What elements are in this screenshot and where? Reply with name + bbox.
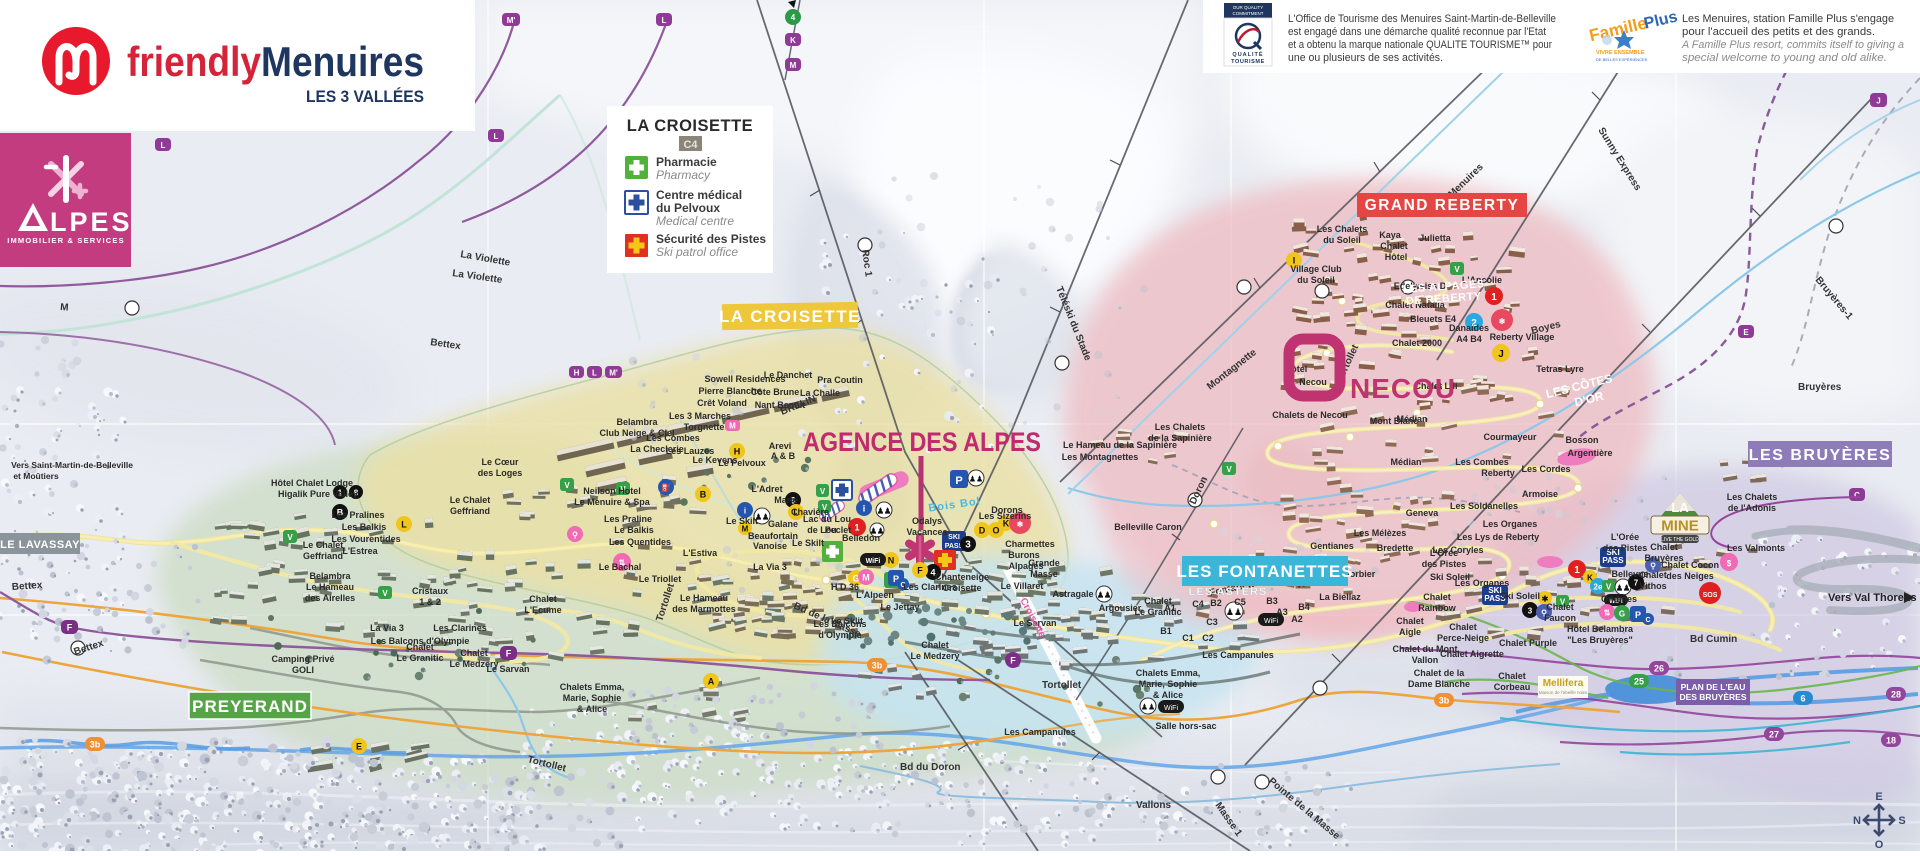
svg-text:Chalet 2000: Chalet 2000 <box>1392 338 1442 348</box>
svg-text:Le Jettay: Le Jettay <box>880 602 919 612</box>
svg-text:Julietta: Julietta <box>1419 233 1452 243</box>
svg-text:de l'Adonis: de l'Adonis <box>1728 503 1776 513</box>
svg-text:Chalet Aigrette: Chalet Aigrette <box>1440 649 1504 659</box>
svg-text:IMMOBILIER & SERVICES: IMMOBILIER & SERVICES <box>7 236 125 245</box>
svg-text:LIVE THE GOLD: LIVE THE GOLD <box>1661 537 1699 543</box>
svg-text:de la Sapinière: de la Sapinière <box>1148 433 1212 443</box>
svg-text:L: L <box>161 141 166 150</box>
svg-text:B: B <box>700 490 707 500</box>
svg-text:Torgnette: Torgnette <box>684 422 725 432</box>
svg-text:B3: B3 <box>1266 596 1278 606</box>
svg-text:Médian: Médian <box>1396 414 1427 424</box>
svg-text:L'Alpeen: L'Alpeen <box>856 590 894 600</box>
svg-text:O: O <box>992 526 999 536</box>
svg-text:V: V <box>287 533 293 542</box>
svg-text:L'Estrea: L'Estrea <box>342 546 378 556</box>
svg-text:& Alice: & Alice <box>1153 690 1183 700</box>
svg-text:Mellifera: Mellifera <box>1543 678 1584 689</box>
svg-text:Marie: Marie <box>774 495 798 505</box>
svg-text:Kaya: Kaya <box>1379 230 1402 240</box>
svg-text:Armoise: Armoise <box>1522 489 1558 499</box>
svg-text:D: D <box>979 526 986 536</box>
svg-text:& Alice: & Alice <box>577 704 607 714</box>
svg-text:MINE: MINE <box>1661 518 1699 535</box>
svg-text:Les Clarines: Les Clarines <box>903 582 957 592</box>
svg-text:C1: C1 <box>1182 633 1194 643</box>
svg-text:❄: ❄ <box>1017 520 1024 529</box>
svg-text:du Soleil: du Soleil <box>1297 275 1335 285</box>
svg-text:3: 3 <box>1528 607 1533 616</box>
svg-text:Village Club: Village Club <box>1290 264 1342 274</box>
svg-text:$: $ <box>1727 559 1732 568</box>
svg-text:Le Hameau: Le Hameau <box>680 593 728 603</box>
svg-text:18: 18 <box>1886 736 1896 746</box>
svg-text:❄: ❄ <box>1499 317 1506 326</box>
svg-text:Les Lauzes: Les Lauzes <box>666 446 715 456</box>
svg-text:Higalik Pure Valley: Higalik Pure Valley <box>278 489 358 499</box>
svg-text:Vers Val Thorens: Vers Val Thorens <box>1828 592 1917 604</box>
svg-text:25: 25 <box>1634 677 1644 687</box>
svg-text:♟♟: ♟♟ <box>1141 703 1155 712</box>
svg-text:♟♟: ♟♟ <box>1226 607 1242 617</box>
svg-text:Centre médical: Centre médical <box>656 188 742 202</box>
svg-text:Le Villaret: Le Villaret <box>1001 581 1044 591</box>
svg-text:26: 26 <box>1654 664 1664 674</box>
svg-text:M: M <box>862 573 870 583</box>
svg-text:⚲: ⚲ <box>572 531 578 540</box>
svg-text:3b: 3b <box>872 661 883 671</box>
svg-text:LE LAVASSAY: LE LAVASSAY <box>0 539 80 551</box>
svg-text:des Airelles: des Airelles <box>305 593 355 603</box>
svg-text:M': M' <box>507 16 516 25</box>
svg-text:Arevi: Arevi <box>769 441 792 451</box>
svg-text:NECOU: NECOU <box>1350 373 1456 404</box>
svg-text:PREYERAND: PREYERAND <box>192 697 308 716</box>
svg-text:Chalet: Chalet <box>1380 241 1408 251</box>
svg-text:O: O <box>1875 839 1884 851</box>
svg-text:Geffriand: Geffriand <box>450 506 490 516</box>
svg-text:Chalet de la: Chalet de la <box>1414 668 1466 678</box>
svg-text:L'Orée: L'Orée <box>1611 532 1639 542</box>
svg-text:WiFi: WiFi <box>1164 705 1178 712</box>
svg-text:♟♟: ♟♟ <box>1097 591 1111 600</box>
svg-text:VIVRE ENSEMBLE: VIVRE ENSEMBLE <box>1596 50 1645 56</box>
svg-text:Belambra: Belambra <box>309 571 351 581</box>
svg-text:S: S <box>1898 815 1905 827</box>
svg-text:LA: LA <box>1671 500 1689 515</box>
svg-text:Vallons: Vallons <box>1136 800 1171 811</box>
svg-text:Odalys: Odalys <box>912 516 942 526</box>
svg-text:Marie, Sophie: Marie, Sophie <box>563 693 622 703</box>
svg-text:L'Ecume: L'Ecume <box>524 605 561 615</box>
svg-text:Pharmacy: Pharmacy <box>656 168 711 182</box>
svg-text:et a obtenu la marque national: et a obtenu la marque nationale QUALITE … <box>1288 39 1552 51</box>
svg-text:Grande: Grande <box>1028 558 1060 568</box>
svg-text:L: L <box>494 132 499 141</box>
svg-text:Le Pelvoux: Le Pelvoux <box>718 458 766 468</box>
svg-text:H: H <box>574 369 580 378</box>
svg-text:AGENCE DES ALPES: AGENCE DES ALPES <box>803 427 1041 457</box>
svg-text:Dame Blanche: Dame Blanche <box>1408 679 1470 689</box>
svg-text:Le Balkis: Le Balkis <box>614 525 654 535</box>
svg-text:Pra Coutin: Pra Coutin <box>817 375 863 385</box>
svg-text:friendlyMenuires: friendlyMenuires <box>127 38 424 85</box>
svg-text:OUR QUALITY: OUR QUALITY <box>1233 5 1264 10</box>
svg-text:Côte Brune: Côte Brune <box>751 387 800 397</box>
svg-text:3b: 3b <box>1439 696 1450 706</box>
svg-text:Beaufortain: Beaufortain <box>748 531 798 541</box>
svg-text:La Biellaz: La Biellaz <box>1319 592 1361 602</box>
svg-text:WiFi: WiFi <box>866 558 881 565</box>
svg-text:COMMITMENT: COMMITMENT <box>1233 11 1264 16</box>
svg-text:DE BELLES EXPÉRIENCES: DE BELLES EXPÉRIENCES <box>1596 57 1648 62</box>
svg-text:Necou: Necou <box>1299 377 1327 387</box>
svg-text:Chalet Cocon: Chalet Cocon <box>1661 560 1719 570</box>
svg-text:LA CROISETTE: LA CROISETTE <box>719 307 861 326</box>
svg-text:Les Balkis: Les Balkis <box>342 522 387 532</box>
svg-text:1: 1 <box>854 523 859 533</box>
svg-text:Les Mélèzes: Les Mélèzes <box>1354 528 1407 538</box>
svg-text:Vallon: Vallon <box>1412 655 1439 665</box>
svg-text:⛽: ⛽ <box>661 483 671 493</box>
svg-text:LES FONTANETTES: LES FONTANETTES <box>1176 562 1353 581</box>
svg-text:Hôtel Belambra: Hôtel Belambra <box>1567 624 1634 634</box>
svg-text:Ski Soleil: Ski Soleil <box>1430 572 1470 582</box>
svg-text:GRAND REBERTY: GRAND REBERTY <box>1365 197 1520 214</box>
svg-text:1: 1 <box>1491 292 1497 303</box>
svg-text:C: C <box>1854 491 1860 500</box>
svg-text:B1: B1 <box>1160 626 1172 636</box>
svg-text:Astragale: Astragale <box>1052 589 1093 599</box>
svg-text:Cristaux: Cristaux <box>412 586 448 596</box>
svg-text:Chalets Emma,: Chalets Emma, <box>1136 668 1201 678</box>
svg-text:Les Menuires, station Famille: Les Menuires, station Famille Plus s'eng… <box>1682 13 1894 25</box>
svg-text:LA CROISETTE: LA CROISETTE <box>627 117 753 135</box>
svg-text:Le Cœur: Le Cœur <box>482 457 519 467</box>
svg-text:F: F <box>67 623 73 633</box>
svg-text:LES ASTERS: LES ASTERS <box>1189 586 1268 598</box>
svg-text:B4: B4 <box>1298 602 1310 612</box>
svg-text:Chalet: Chalet <box>460 648 488 658</box>
svg-text:Les 3 Marches: Les 3 Marches <box>669 411 731 421</box>
svg-text:V: V <box>1454 265 1460 274</box>
svg-text:Les Praline: Les Praline <box>604 514 652 524</box>
svg-text:Le Chalet: Le Chalet <box>303 540 344 550</box>
svg-text:27: 27 <box>1769 730 1779 740</box>
svg-text:Danaïdes: Danaïdes <box>1449 323 1489 333</box>
svg-text:6: 6 <box>1800 694 1805 704</box>
svg-text:Corbeau: Corbeau <box>1494 682 1531 692</box>
svg-text:Le Skilt: Le Skilt <box>792 538 824 548</box>
svg-text:La Via 3: La Via 3 <box>753 562 787 572</box>
svg-text:Masse: Masse <box>1030 569 1058 579</box>
svg-text:Le Granitic: Le Granitic <box>396 653 443 663</box>
svg-text:Charmettes: Charmettes <box>1005 539 1055 549</box>
svg-text:Pharmacie: Pharmacie <box>656 155 717 169</box>
svg-text:LES 3 VALLÉES: LES 3 VALLÉES <box>306 87 424 106</box>
svg-text:DES BRUYÈRES: DES BRUYÈRES <box>1679 692 1746 702</box>
svg-text:Le Hameau: Le Hameau <box>306 582 354 592</box>
svg-text:Courmayeur: Courmayeur <box>1483 432 1537 442</box>
svg-text:PLAN DE L'EAU: PLAN DE L'EAU <box>1681 682 1746 692</box>
svg-text:28: 28 <box>1891 690 1901 700</box>
svg-text:est engagé dans une démarche q: est engagé dans une démarche qualité rec… <box>1288 26 1546 38</box>
svg-text:2e: 2e <box>1594 583 1603 592</box>
svg-text:Les Clarines: Les Clarines <box>433 623 487 633</box>
svg-text:Argousier: Argousier <box>1099 603 1142 613</box>
svg-text:N: N <box>888 556 895 566</box>
svg-text:Rainbow: Rainbow <box>1418 603 1456 613</box>
svg-text:Les Chalets: Les Chalets <box>1155 422 1206 432</box>
svg-text:Les Campanules: Les Campanules <box>1202 650 1274 660</box>
svg-text:Chalet: Chalet <box>1449 622 1477 632</box>
svg-text:L: L <box>662 16 667 25</box>
svg-text:C2: C2 <box>1202 633 1214 643</box>
svg-text:Les Lys de Reberty: Les Lys de Reberty <box>1457 532 1539 542</box>
svg-text:Chalet Purple: Chalet Purple <box>1499 638 1557 648</box>
svg-text:Tetras Lyre: Tetras Lyre <box>1536 364 1584 374</box>
svg-text:Vanoise: Vanoise <box>753 541 787 551</box>
svg-text:Hôtel: Hôtel <box>1385 252 1408 262</box>
svg-text:7: 7 <box>1634 579 1639 588</box>
svg-text:Galane: Galane <box>768 519 798 529</box>
svg-text:Les Montagnettes: Les Montagnettes <box>1062 452 1139 462</box>
svg-text:Chalet: Chalet <box>1546 602 1574 612</box>
svg-text:Marie, Sophie: Marie, Sophie <box>1139 679 1198 689</box>
svg-text:E: E <box>356 742 362 752</box>
svg-text:SKI: SKI <box>948 534 960 541</box>
svg-text:L'Estiva: L'Estiva <box>683 548 718 558</box>
svg-text:M: M <box>790 61 797 70</box>
svg-text:Maison de l'abeille noire: Maison de l'abeille noire <box>1539 690 1588 695</box>
svg-text:Les Chalets: Les Chalets <box>1317 224 1368 234</box>
svg-text:B2: B2 <box>1210 598 1222 608</box>
svg-text:⇅: ⇅ <box>1604 609 1611 618</box>
svg-text:Les Chalets: Les Chalets <box>1727 492 1778 502</box>
svg-text:3: 3 <box>965 540 971 551</box>
svg-text:C: C <box>1645 617 1650 624</box>
svg-text:des Marmottes: des Marmottes <box>672 604 736 614</box>
svg-text:"Les Bruyères": "Les Bruyères" <box>1567 635 1633 645</box>
svg-text:P: P <box>955 475 962 487</box>
svg-text:Les Combes: Les Combes <box>1455 457 1509 467</box>
svg-text:L: L <box>401 520 407 530</box>
svg-text:1 & 2: 1 & 2 <box>419 597 441 607</box>
svg-text:C5: C5 <box>1234 597 1246 607</box>
svg-text:TOURISME: TOURISME <box>1231 59 1265 65</box>
svg-text:PASS: PASS <box>1602 556 1624 565</box>
svg-text:M: M <box>60 302 69 314</box>
svg-text:Belambra: Belambra <box>616 417 658 427</box>
svg-text:M: M <box>729 422 736 431</box>
svg-text:des Pistes: des Pistes <box>1603 543 1648 553</box>
svg-text:V: V <box>1226 465 1232 474</box>
svg-text:SOS: SOS <box>1703 592 1718 599</box>
svg-text:Bosson: Bosson <box>1565 435 1598 445</box>
svg-text:Les Campanules: Les Campanules <box>1004 727 1076 737</box>
svg-text:Vers Saint-Martin-de-Bellevill: Vers Saint-Martin-de-Belleville <box>11 460 133 470</box>
svg-text:Ski patrol office: Ski patrol office <box>656 245 738 259</box>
svg-text:C3: C3 <box>1206 617 1218 627</box>
svg-text:Hôtel Chalet Lodge: Hôtel Chalet Lodge <box>271 478 353 488</box>
svg-text:C4: C4 <box>683 139 698 151</box>
svg-text:F: F <box>917 566 923 576</box>
svg-text:E: E <box>1743 328 1749 337</box>
svg-text:A Famille Plus resort, commits: A Famille Plus resort, commits itself to… <box>1681 39 1904 51</box>
svg-text:Ondines: Ondines <box>1601 594 1637 604</box>
svg-text:Neilson Hotel: Neilson Hotel <box>583 486 641 496</box>
svg-text:L'Adret: L'Adret <box>751 484 782 494</box>
svg-text:Les Sizerins: Les Sizerins <box>979 511 1032 521</box>
svg-text:special welcome to young and o: special welcome to young and old alike. <box>1682 52 1887 64</box>
svg-text:A1: A1 <box>1164 603 1176 613</box>
svg-text:une ou plusieurs de ses activi: une ou plusieurs de ses activités. <box>1288 52 1443 64</box>
svg-text:H D 36: H D 36 <box>831 582 859 592</box>
svg-text:♟♟: ♟♟ <box>877 507 891 516</box>
svg-text:Chalet: Chalet <box>1650 542 1678 552</box>
svg-text:E: E <box>1875 791 1882 803</box>
svg-text:Bd du Doron: Bd du Doron <box>900 762 961 773</box>
svg-text:Aigle: Aigle <box>1399 627 1421 637</box>
svg-text:Bd Cumin: Bd Cumin <box>1690 634 1737 645</box>
svg-text:Faucon: Faucon <box>1544 613 1576 623</box>
svg-text:Crêt Voland: Crêt Voland <box>697 398 747 408</box>
svg-text:LPES: LPES <box>50 207 133 237</box>
svg-text:Les Balcons d'Olympie: Les Balcons d'Olympie <box>371 636 470 646</box>
svg-text:Chalets Emma,: Chalets Emma, <box>560 682 625 692</box>
svg-text:3b: 3b <box>90 740 101 750</box>
svg-text:A3: A3 <box>1276 607 1288 617</box>
svg-text:i: i <box>744 507 746 516</box>
svg-text:LES BRUYÈRES: LES BRUYÈRES <box>1749 445 1891 464</box>
svg-text:♟♟: ♟♟ <box>1616 584 1630 593</box>
svg-text:Les Quentides: Les Quentides <box>609 537 671 547</box>
svg-text:des Loges: des Loges <box>478 468 523 478</box>
svg-text:pour l'accueil des petits et d: pour l'accueil des petits et des grands. <box>1682 26 1875 38</box>
svg-text:Le Chalet: Le Chalet <box>450 495 491 505</box>
svg-text:L: L <box>592 369 597 378</box>
svg-text:Sécurité des Pistes: Sécurité des Pistes <box>656 232 766 246</box>
svg-text:Gentianes: Gentianes <box>1310 541 1354 551</box>
svg-text:Le Skilt: Le Skilt <box>726 516 758 526</box>
svg-text:Chalet: Chalet <box>1396 616 1424 626</box>
svg-text:4: 4 <box>791 13 796 22</box>
svg-text:M': M' <box>609 369 618 378</box>
svg-text:Les Pralines: Les Pralines <box>331 510 384 520</box>
svg-text:V: V <box>820 487 826 496</box>
svg-text:Belledon: Belledon <box>842 533 880 543</box>
svg-text:L'Orée: L'Orée <box>1430 548 1458 558</box>
svg-text:Salle hors-sac: Salle hors-sac <box>1155 721 1216 731</box>
svg-text:Argentière: Argentière <box>1567 448 1612 458</box>
svg-text:WiFi: WiFi <box>1264 618 1278 625</box>
svg-text:Les Valmonts: Les Valmonts <box>1727 543 1785 553</box>
svg-text:GOLI: GOLI <box>292 665 314 675</box>
svg-text:Le Medzery: Le Medzery <box>449 659 498 669</box>
svg-text:A & B: A & B <box>771 451 796 461</box>
svg-text:Camping Privé: Camping Privé <box>271 654 334 664</box>
svg-text:Les Soldanelles: Les Soldanelles <box>1450 501 1518 511</box>
svg-text:V: V <box>1606 583 1612 592</box>
svg-text:et Moûtiers: et Moûtiers <box>13 471 59 481</box>
svg-text:Médian: Médian <box>1390 457 1421 467</box>
svg-text:Ski Soleil: Ski Soleil <box>1500 591 1540 601</box>
svg-text:A4 B4: A4 B4 <box>1456 334 1482 344</box>
svg-text:Le Bachal: Le Bachal <box>599 562 642 572</box>
svg-text:Le Menuire & Spa: Le Menuire & Spa <box>574 497 651 507</box>
svg-text:G: G <box>1619 610 1625 619</box>
svg-text:A: A <box>708 677 715 687</box>
svg-text:Chalet: Chalet <box>921 640 949 650</box>
svg-text:des Pistes: des Pistes <box>1422 559 1467 569</box>
svg-text:Bredette: Bredette <box>1377 543 1414 553</box>
svg-text:La Via 3: La Via 3 <box>370 623 404 633</box>
svg-text:Les Organes: Les Organes <box>1483 519 1538 529</box>
svg-text:Chanteneige: Chanteneige <box>935 572 989 582</box>
svg-text:Chalet: Chalet <box>529 594 557 604</box>
svg-text:Vithos: Vithos <box>1639 581 1666 591</box>
svg-text:Medical centre: Medical centre <box>656 214 734 228</box>
svg-text:QUALITÉ: QUALITÉ <box>1232 50 1263 58</box>
svg-text:Le Medzery: Le Medzery <box>910 651 959 661</box>
svg-text:Perce-Neige: Perce-Neige <box>1437 633 1489 643</box>
svg-text:L'Office de Tourisme des Menui: L'Office de Tourisme des Menuires Saint-… <box>1288 13 1556 25</box>
svg-text:A2: A2 <box>1291 614 1303 624</box>
svg-text:du Pelvoux: du Pelvoux <box>656 201 720 215</box>
svg-text:Bettex: Bettex <box>11 580 43 593</box>
svg-text:Lac du Lou: Lac du Lou <box>803 514 851 524</box>
svg-text:Tortollet: Tortollet <box>1042 680 1082 691</box>
svg-text:Bellevue: Bellevue <box>1611 569 1648 579</box>
svg-text:K: K <box>790 36 796 45</box>
svg-text:Bruyères: Bruyères <box>1798 382 1842 393</box>
svg-text:F: F <box>506 649 512 659</box>
svg-text:Le Danchet: Le Danchet <box>764 370 813 380</box>
svg-text:Belleville Caron: Belleville Caron <box>1114 522 1182 532</box>
svg-text:P: P <box>1635 610 1641 620</box>
svg-text:Chalets de Necou: Chalets de Necou <box>1272 410 1348 420</box>
svg-text:des Neiges: des Neiges <box>1666 571 1714 581</box>
svg-text:1: 1 <box>1574 565 1580 576</box>
svg-text:V: V <box>382 589 388 598</box>
svg-text:Reberty: Reberty <box>1481 468 1515 478</box>
svg-text:J: J <box>1876 97 1880 106</box>
svg-text:C4: C4 <box>1192 599 1204 609</box>
svg-text:J: J <box>1498 349 1504 360</box>
svg-text:V: V <box>564 481 570 490</box>
svg-text:Club Neige & Ciel: Club Neige & Ciel <box>599 428 674 438</box>
svg-text:Geffriand: Geffriand <box>303 551 343 561</box>
svg-text:i: i <box>863 504 866 514</box>
svg-text:Les Cordes: Les Cordes <box>1521 464 1570 474</box>
svg-text:du Soleil: du Soleil <box>1323 235 1361 245</box>
svg-text:F: F <box>1010 656 1016 666</box>
svg-text:♟♟: ♟♟ <box>969 475 983 484</box>
svg-text:N: N <box>1853 815 1861 827</box>
svg-text:Le Triollet: Le Triollet <box>639 574 682 584</box>
svg-text:Vacances: Vacances <box>906 527 947 537</box>
svg-text:Geneva: Geneva <box>1406 508 1440 518</box>
svg-text:Chalet: Chalet <box>1498 671 1526 681</box>
svg-text:Chalet: Chalet <box>1423 592 1451 602</box>
